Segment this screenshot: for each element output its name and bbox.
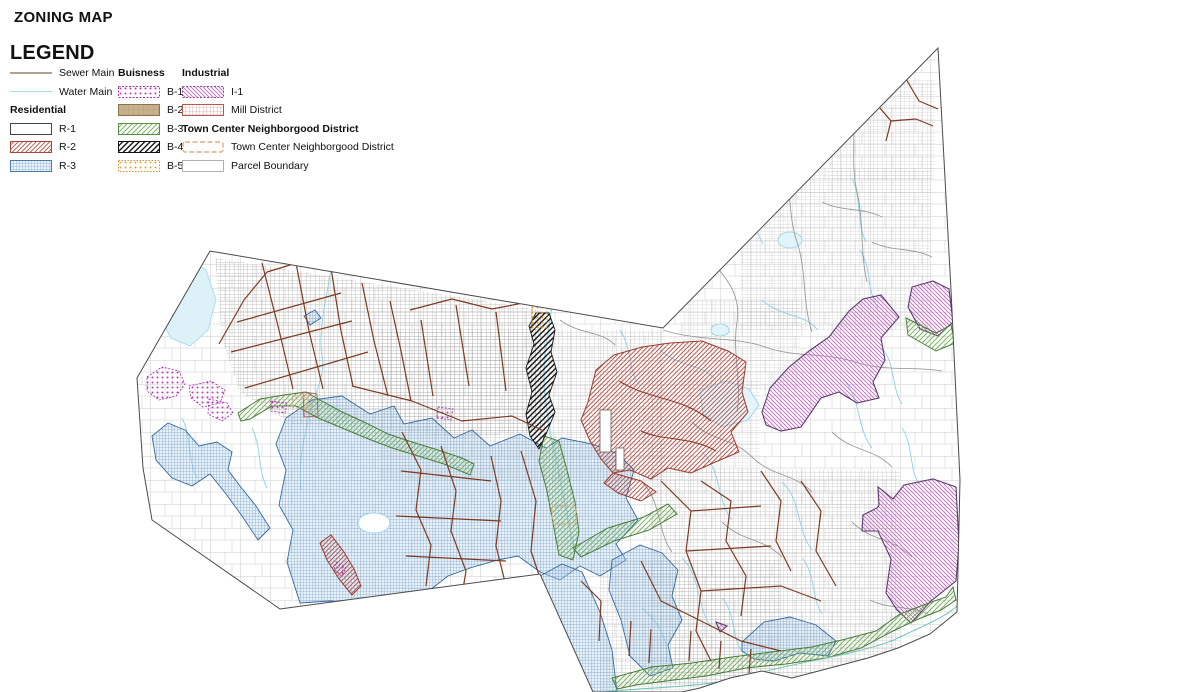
legend-label: R-2 xyxy=(59,141,76,153)
water-main-line-swatch xyxy=(10,86,52,98)
r2-swatch xyxy=(10,141,52,153)
town-center-swatch xyxy=(182,141,224,153)
legend-item-parcel-boundary: Parcel Boundary xyxy=(182,157,412,176)
legend-label: B-5 xyxy=(167,160,183,172)
legend-item-sewer-main: Sewer Main xyxy=(10,64,116,83)
legend-item-water-main: Water Main xyxy=(10,83,116,102)
legend-label: B-3 xyxy=(167,123,183,135)
sewer-main-line-swatch xyxy=(10,67,52,79)
legend-heading: LEGEND xyxy=(10,42,95,65)
zone-b5 xyxy=(532,305,547,328)
legend-item-r2: R-2 xyxy=(10,138,116,157)
b5-swatch xyxy=(118,160,160,172)
legend-label: B-2 xyxy=(167,104,183,116)
legend-label: Mill District xyxy=(231,104,282,116)
legend-header-industrial: Industrial xyxy=(182,64,412,83)
legend-header-residential: Residential xyxy=(10,101,116,120)
parcel-boundary-swatch xyxy=(182,160,224,172)
legend-label: R-3 xyxy=(59,160,76,172)
legend-label: R-1 xyxy=(59,123,76,135)
i1-swatch xyxy=(182,86,224,98)
legend-column-industrial-towncenter: Industrial I-1 Mill District Town Center… xyxy=(182,64,412,175)
r3-swatch xyxy=(10,160,52,172)
b1-swatch xyxy=(118,86,160,98)
legend-header-business: Buisness xyxy=(118,64,180,83)
pond-in-r3 xyxy=(358,513,390,533)
legend-label: B-4 xyxy=(167,141,183,153)
legend-item-r3: R-3 xyxy=(10,157,116,176)
legend-item-b3: B-3 xyxy=(118,120,180,139)
legend-label: Town Center Neighborgood District xyxy=(231,141,394,153)
legend-label: Water Main xyxy=(59,86,112,98)
legend-label: I-1 xyxy=(231,86,243,98)
legend-item-b2: B-2 xyxy=(118,101,180,120)
legend-item-b1: B-1 xyxy=(118,83,180,102)
legend-item-b4: B-4 xyxy=(118,138,180,157)
legend-item-town-center: Town Center Neighborgood District xyxy=(182,138,412,157)
legend-column-business: Buisness B-1 B-2 B-3 B-4 B-5 xyxy=(118,64,180,175)
r2-white-notch xyxy=(600,410,611,452)
legend-label: Parcel Boundary xyxy=(231,160,309,172)
legend-label: B-1 xyxy=(167,86,183,98)
mill-district-swatch xyxy=(182,104,224,116)
r1-swatch xyxy=(10,123,52,135)
legend-column-lines-residential: Sewer Main Water Main Residential R-1 R-… xyxy=(10,64,116,175)
legend-item-b5: B-5 xyxy=(118,157,180,176)
legend-item-i1: I-1 xyxy=(182,83,412,102)
zone-mill xyxy=(303,392,318,417)
b2-swatch xyxy=(118,104,160,116)
legend-header-town-center: Town Center Neighborgood District xyxy=(182,120,412,139)
legend-item-mill-district: Mill District xyxy=(182,101,412,120)
legend-item-r1: R-1 xyxy=(10,120,116,139)
page-title: ZONING MAP xyxy=(14,9,113,26)
r2-white-notch xyxy=(616,448,624,470)
b4-swatch xyxy=(118,141,160,153)
legend-label: Sewer Main xyxy=(59,67,114,79)
b3-swatch xyxy=(118,123,160,135)
